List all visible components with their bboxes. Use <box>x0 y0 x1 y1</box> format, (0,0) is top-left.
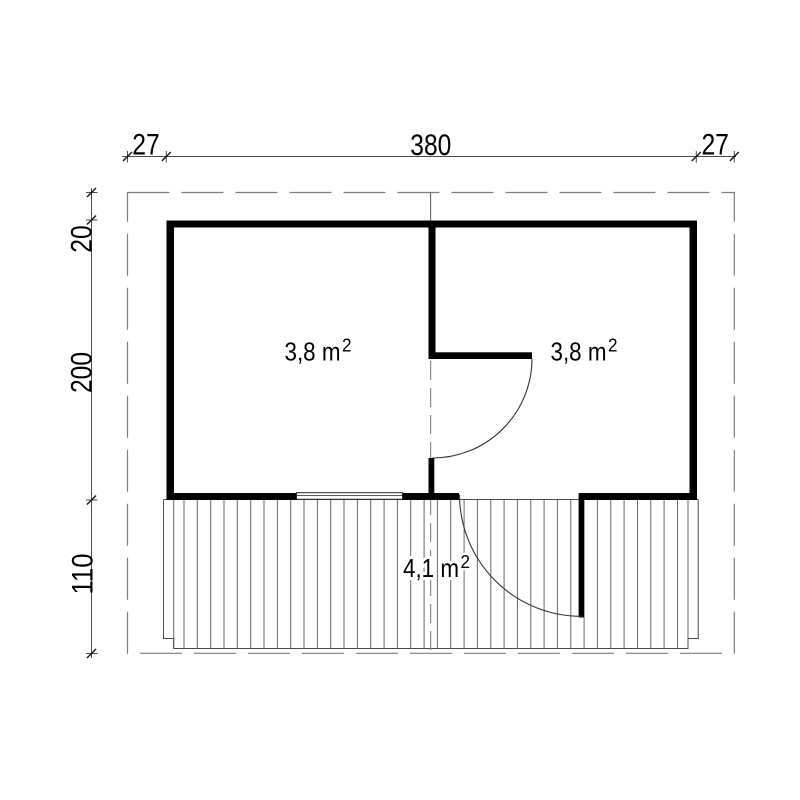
svg-text:27: 27 <box>132 129 160 162</box>
svg-text:20: 20 <box>66 225 99 253</box>
svg-text:110: 110 <box>67 554 100 595</box>
svg-text:3,8 m: 3,8 m <box>285 337 341 367</box>
svg-text:2: 2 <box>608 336 618 356</box>
svg-text:380: 380 <box>410 129 451 162</box>
svg-text:200: 200 <box>66 352 99 393</box>
svg-text:4,1 m: 4,1 m <box>403 553 459 583</box>
svg-text:2: 2 <box>342 336 352 356</box>
svg-text:2: 2 <box>461 552 471 572</box>
svg-text:3,8 m: 3,8 m <box>551 337 607 367</box>
svg-text:27: 27 <box>701 129 729 162</box>
